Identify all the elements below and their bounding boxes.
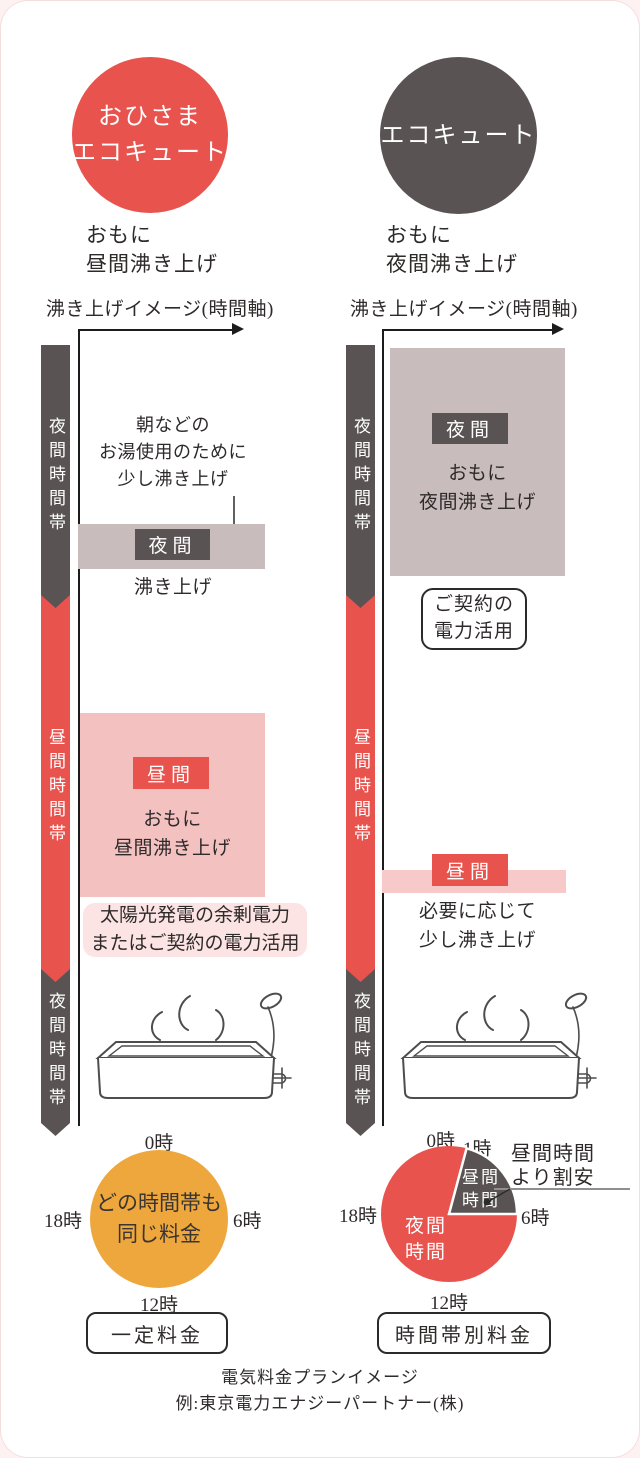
ecocute-subtitle: おもに 夜間沸き上げ (386, 221, 518, 280)
faucet-handle (273, 1068, 291, 1088)
tub-body (98, 1058, 274, 1098)
left-day-chip: 昼間 (133, 757, 209, 789)
right-band-night-2: 夜間時間帯 (346, 968, 375, 1136)
pie-discount-annotation: 昼間時間 より割安 (511, 1142, 635, 1190)
left-band-night-1-label: 夜間時間帯 (47, 417, 64, 537)
right-day-bar-caption: 必要に応じて 少し沸き上げ (390, 898, 565, 955)
ohisama-subtitle: おもに 昼間沸き上げ (86, 221, 218, 280)
bathtub-illustration (92, 988, 292, 1110)
shower-head-icon (563, 991, 588, 1012)
flat-rate-pie: どの時間帯も 同じ料金 (90, 1150, 228, 1288)
right-time-axis-vertical (382, 330, 384, 1126)
left-band-night-2-label: 夜間時間帯 (47, 992, 64, 1112)
steam-icon (484, 996, 495, 1030)
steam-icon (216, 1010, 224, 1040)
left-night-bar-caption: 沸き上げ (80, 574, 266, 603)
right-night-chip: 夜間 (432, 413, 508, 444)
footer-caption-line1: 電気料金プランイメージ (0, 1363, 640, 1388)
annotation-leader-line (480, 1188, 514, 1210)
right-band-night-1: 夜間時間帯 (346, 345, 375, 608)
infographic-canvas: おひさま エコキュート おもに 昼間沸き上げ 沸き上げイメージ(時間軸) 夜間時… (0, 0, 640, 1458)
left-axis-arrowhead-icon (232, 323, 244, 335)
right-day-chip: 昼間 (432, 854, 508, 886)
left-pie-tick-6: 6時 (233, 1206, 262, 1233)
left-band-night-2: 夜間時間帯 (41, 968, 70, 1136)
right-pie-tick-12: 12時 (381, 1288, 517, 1315)
pie-night-time-label: 夜間 時間 (392, 1214, 460, 1265)
right-contract-power-note: ご契約の 電力活用 (421, 588, 527, 650)
right-pie-tick-18: 18時 (331, 1201, 377, 1228)
tub-body (403, 1058, 579, 1098)
left-band-day-label: 昼間時間帯 (47, 728, 64, 848)
annotation-underline (494, 1188, 630, 1190)
steam-icon (152, 1012, 162, 1040)
left-band-night-1: 夜間時間帯 (41, 345, 70, 608)
left-axis-title: 沸き上げイメージ(時間軸) (46, 294, 274, 321)
right-axis-title: 沸き上げイメージ(時間軸) (350, 294, 578, 321)
time-of-day-caption-box: 時間帯別料金 (377, 1312, 551, 1354)
left-day-box-text: おもに 昼間沸き上げ (80, 806, 265, 863)
steam-icon (457, 1012, 467, 1040)
bathtub-illustration (397, 988, 597, 1110)
right-band-night-1-label: 夜間時間帯 (352, 417, 369, 537)
left-morning-note: 朝などの お湯使用のために 少し沸き上げ (80, 412, 266, 493)
right-night-box-text: おもに 夜間沸き上げ (390, 460, 565, 517)
right-band-night-2-label: 夜間時間帯 (352, 992, 369, 1112)
left-time-axis-horizontal (78, 329, 234, 331)
ohisama-ecocute-badge: おひさま エコキュート (72, 57, 228, 213)
left-night-chip: 夜間 (135, 529, 210, 560)
right-axis-arrowhead-icon (552, 323, 564, 335)
steam-icon (521, 1010, 529, 1040)
faucet-handle (578, 1068, 596, 1088)
right-band-day-label: 昼間時間帯 (352, 728, 369, 848)
steam-icon (179, 996, 190, 1030)
shower-head-icon (258, 991, 283, 1012)
left-power-source-note: 太陽光発電の余剰電力 またはご契約の電力活用 (83, 903, 307, 957)
flat-rate-caption-box: 一定料金 (86, 1312, 228, 1354)
left-band-day: 昼間時間帯 (41, 594, 70, 982)
left-day-heatup-box (80, 713, 265, 897)
left-pie-tick-18: 18時 (38, 1206, 82, 1233)
ecocute-badge: エコキュート (380, 57, 537, 214)
right-time-axis-horizontal (382, 329, 554, 331)
right-band-day: 昼間時間帯 (346, 594, 375, 982)
right-pie-tick-6: 6時 (521, 1203, 550, 1230)
footer-caption-line2: 例:東京電力エナジーパートナー(株) (0, 1389, 640, 1414)
